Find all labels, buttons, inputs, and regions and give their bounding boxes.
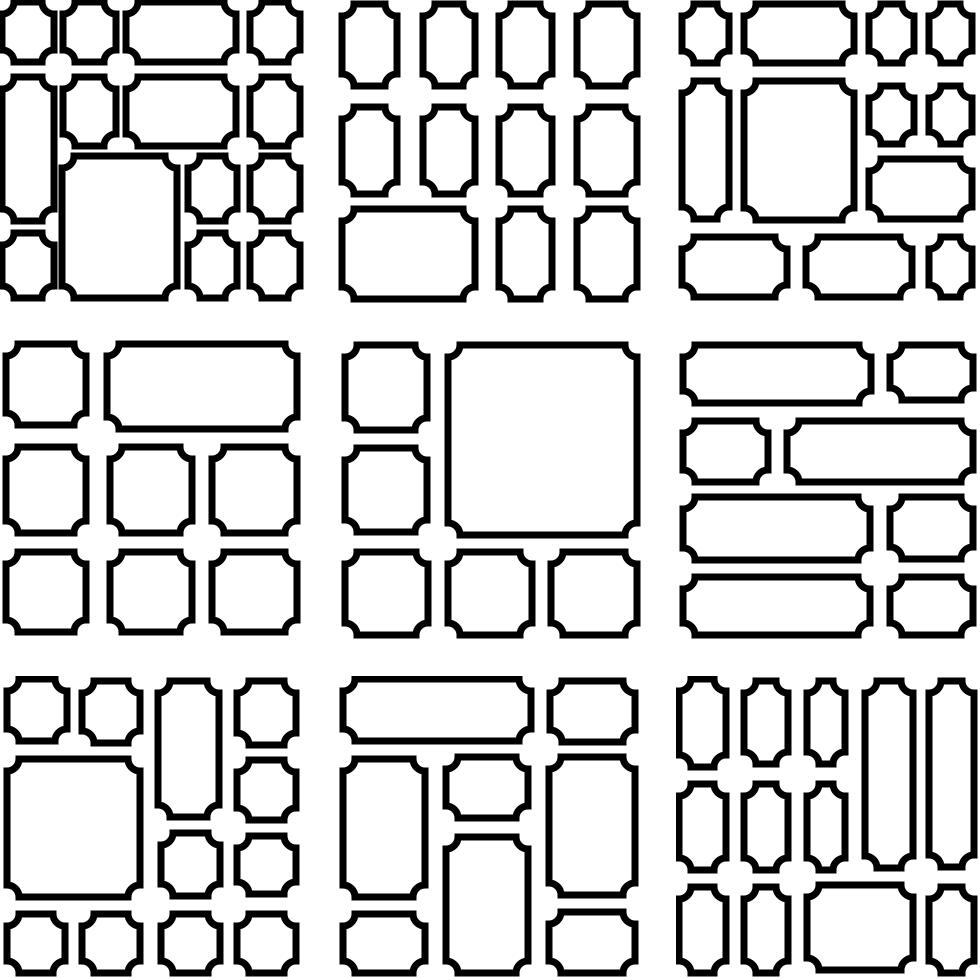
mosaic-frame-shape (423, 4, 475, 86)
mosaic-frame-shape (62, 156, 177, 298)
mosaic-frame-shape (126, 2, 236, 62)
mosaic-frame-shape (682, 81, 729, 219)
mosaic-frame-shape (82, 914, 140, 973)
mosaic-frame-shape (869, 86, 914, 144)
mosaic-frame-shape (423, 107, 475, 194)
mosaic-frame-shape (342, 4, 397, 86)
mosaic-frame-shape (342, 107, 397, 194)
pattern-tile-2 (338, 0, 642, 304)
mosaic-frame-shape (577, 4, 637, 86)
mosaic-frame-shape (63, 2, 116, 62)
mosaic-frame-shape (237, 836, 296, 894)
mosaic-frame-shape (188, 156, 237, 221)
mosaic-frame-shape (237, 914, 296, 973)
mosaic-frame-shape (869, 4, 914, 63)
mosaic-frame-shape (679, 887, 726, 973)
mosaic-frame-shape (343, 759, 425, 897)
mosaic-frame-shape (82, 681, 140, 743)
mosaic-frame-shape (188, 233, 237, 298)
mosaic-frame-shape (345, 345, 427, 430)
mosaic-frame-shape (549, 757, 635, 895)
mosaic-frame-shape (679, 784, 726, 870)
mosaic-frame-shape (679, 679, 726, 767)
mosaic-frame-shape (343, 914, 425, 973)
mosaic-frame-shape (448, 345, 637, 535)
mosaic-frame-shape (237, 760, 296, 820)
mosaic-frame-shape (683, 345, 871, 403)
mosaic-frame-shape (682, 4, 729, 63)
pattern-tile-4 (0, 338, 304, 642)
mosaic-frame-shape (682, 237, 787, 297)
mosaic-frame-shape (110, 447, 192, 533)
mosaic-frame-shape (212, 447, 297, 533)
mosaic-frame-shape (2, 77, 54, 221)
pattern-tile-3 (676, 0, 980, 304)
mosaic-frame-shape (250, 77, 300, 146)
mosaic-frame-shape (161, 914, 220, 973)
mosaic-frame-shape (237, 681, 296, 745)
pattern-tile-5 (338, 338, 642, 642)
pattern-tile-8 (338, 676, 642, 980)
mosaic-frame-shape (929, 86, 972, 144)
mosaic-frame-shape (549, 912, 635, 973)
mosaic-frame-shape (2, 2, 54, 62)
mosaic-frame-shape (345, 552, 428, 635)
mosaic-frame-shape (446, 757, 528, 818)
mosaic-frame-shape (158, 681, 219, 817)
mosaic-frame-shape (499, 209, 552, 299)
mosaic-frame-shape (787, 421, 973, 482)
mosaic-frame-shape (126, 77, 236, 146)
mosaic-frame-shape (250, 233, 300, 298)
mosaic-frame-shape (929, 237, 972, 297)
pattern-tile-6 (676, 338, 980, 642)
mosaic-frame-shape (683, 577, 870, 635)
pattern-tile-9 (676, 676, 980, 980)
mosaic-frame-shape (744, 681, 788, 764)
mosaic-frame-shape (807, 681, 845, 764)
mosaic-frame-shape (744, 784, 788, 870)
mosaic-frame-shape (342, 209, 475, 299)
mosaic-frame-shape (448, 552, 532, 635)
pattern-sheet (0, 0, 980, 980)
mosaic-frame-shape (929, 887, 974, 973)
pattern-tile-7 (0, 676, 304, 980)
mosaic-frame-shape (744, 887, 788, 973)
mosaic-frame-shape (890, 497, 973, 559)
mosaic-frame-shape (744, 4, 854, 63)
mosaic-frame-shape (212, 552, 297, 632)
mosaic-frame-shape (865, 681, 913, 868)
mosaic-frame-shape (683, 497, 870, 560)
mosaic-frame-shape (250, 156, 300, 221)
mosaic-frame-shape (577, 209, 637, 299)
mosaic-frame-shape (499, 107, 552, 194)
mosaic-frame-shape (107, 344, 297, 429)
mosaic-frame-shape (929, 4, 972, 63)
mosaic-frame-shape (890, 577, 973, 635)
mosaic-frame-shape (869, 159, 972, 219)
mosaic-frame-shape (550, 681, 635, 742)
mosaic-frame-shape (7, 759, 140, 897)
mosaic-frame-shape (7, 679, 67, 741)
mosaic-frame-shape (577, 107, 637, 194)
mosaic-frame-shape (110, 552, 192, 632)
mosaic-frame-shape (6, 447, 86, 533)
mosaic-frame-shape (2, 233, 54, 298)
mosaic-frame-shape (806, 237, 912, 297)
mosaic-frame-shape (6, 552, 86, 632)
mosaic-frame-shape (683, 421, 768, 482)
pattern-tile-1 (0, 0, 304, 304)
mosaic-frame-shape (499, 4, 552, 86)
mosaic-frame-shape (63, 77, 116, 146)
mosaic-frame-shape (890, 345, 973, 400)
mosaic-frame-shape (807, 885, 913, 970)
mosaic-frame-shape (161, 833, 220, 896)
mosaic-frame-shape (345, 448, 427, 532)
mosaic-frame-shape (446, 837, 528, 973)
mosaic-frame-shape (7, 914, 65, 973)
mosaic-frame-shape (551, 552, 637, 635)
mosaic-frame-shape (744, 81, 854, 220)
mosaic-frame-shape (6, 344, 86, 425)
mosaic-frame-shape (807, 784, 845, 870)
mosaic-frame-shape (250, 2, 300, 62)
mosaic-frame-shape (929, 681, 974, 867)
mosaic-frame-shape (343, 679, 531, 741)
